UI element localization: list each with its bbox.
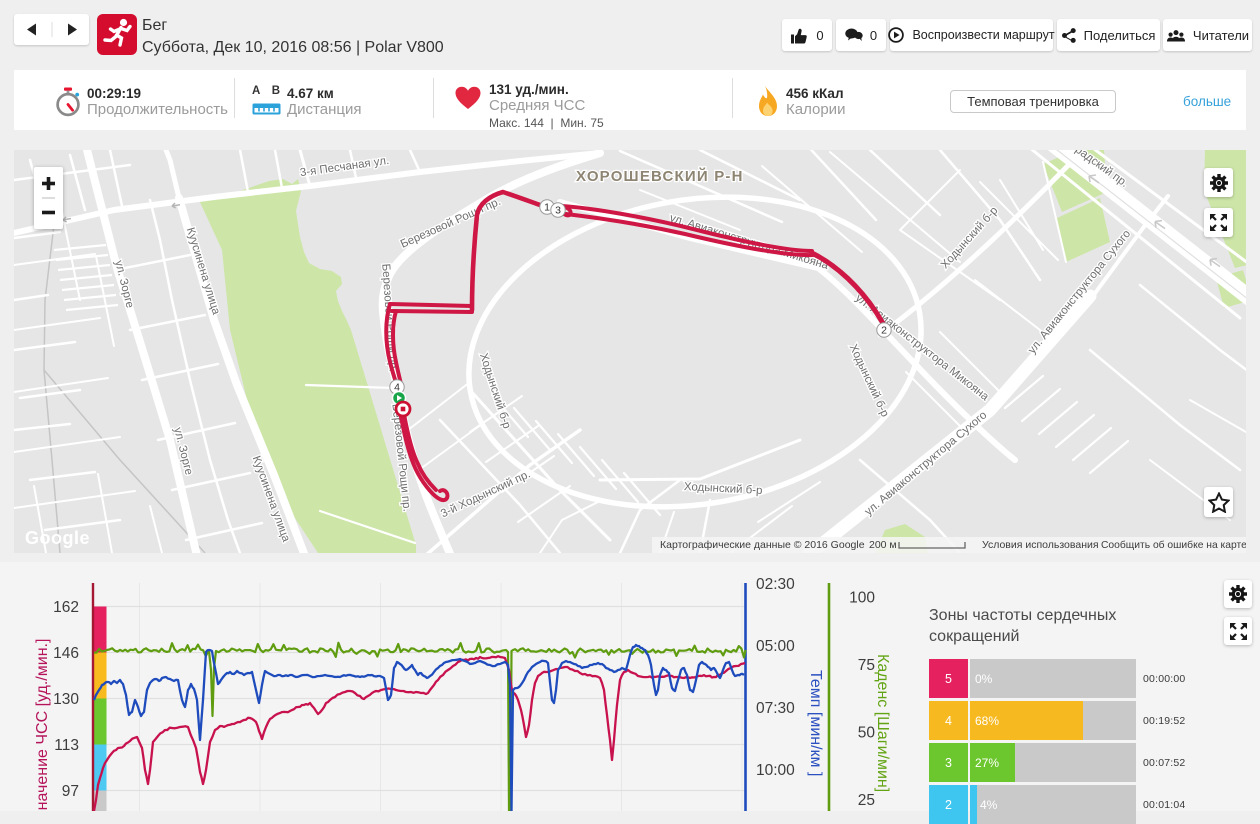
svg-text:ХОРОШЕВСКИЙ Р-Н: ХОРОШЕВСКИЙ Р-Н (576, 167, 744, 185)
svg-text:97: 97 (62, 783, 79, 800)
svg-text:Значение ЧСС [уд./мин.]: Значение ЧСС [уд./мин.] (34, 639, 51, 811)
svg-text:146: 146 (53, 645, 79, 662)
svg-text:75: 75 (858, 657, 875, 674)
svg-text:02:30: 02:30 (756, 576, 795, 593)
svg-text:1: 1 (544, 202, 550, 214)
svg-text:Google: Google (25, 528, 90, 548)
svg-text:50: 50 (858, 725, 876, 742)
svg-text:Сообщить об ошибке на карте: Сообщить об ошибке на карте (1101, 539, 1246, 551)
svg-text:07:30: 07:30 (756, 700, 795, 717)
svg-text:130: 130 (53, 691, 79, 708)
svg-text:Темп [мин/км ]: Темп [мин/км ] (807, 670, 824, 776)
svg-text:2: 2 (881, 325, 887, 337)
svg-text:05:00: 05:00 (756, 638, 795, 655)
svg-text:Каденс [Шаги/мин]: Каденс [Шаги/мин] (874, 654, 891, 792)
svg-text:3: 3 (555, 205, 561, 217)
svg-text:200 м: 200 м (869, 539, 897, 551)
svg-text:113: 113 (54, 737, 79, 754)
svg-text:10:00: 10:00 (756, 762, 795, 779)
svg-text:162: 162 (53, 599, 79, 616)
svg-text:25: 25 (858, 792, 875, 809)
svg-text:Условия использования: Условия использования (982, 539, 1099, 551)
svg-text:Картографические данные © 2016: Картографические данные © 2016 Google (660, 539, 865, 551)
svg-text:100: 100 (849, 590, 875, 607)
